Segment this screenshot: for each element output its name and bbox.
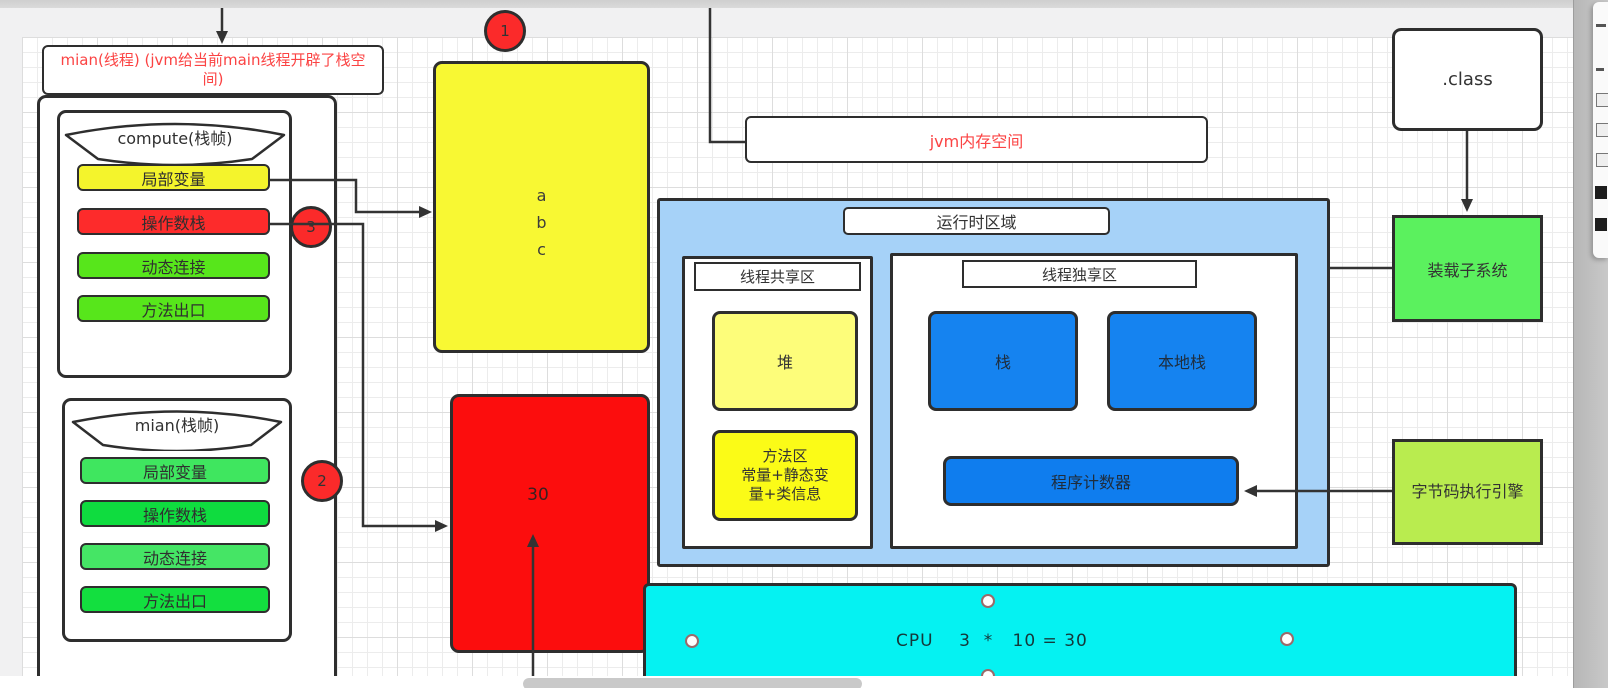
compute-frame-header[interactable]: compute(栈帧) xyxy=(60,115,290,165)
pc-register-label: 程序计数器 xyxy=(1051,469,1131,493)
thread-shared-label: 线程共享区 xyxy=(740,266,815,287)
class-file-label: .class xyxy=(1442,69,1492,90)
pc-register-box[interactable]: 程序计数器 xyxy=(943,456,1239,506)
connection-point-right[interactable] xyxy=(1280,632,1294,646)
result-value: 30 xyxy=(508,485,568,505)
compute-row-method-exit[interactable]: 方法出口 xyxy=(77,295,270,322)
var-b: b xyxy=(436,209,647,236)
main-thread-label: mian(线程) (jvm给当前main线程开辟了栈空间) xyxy=(44,51,382,89)
main-row-local-vars[interactable]: 局部变量 xyxy=(80,457,270,484)
var-a: a xyxy=(436,182,647,209)
top-window-bar xyxy=(0,0,1608,8)
app-window: mian(线程) (jvm给当前main线程开辟了栈空间) compute(栈帧… xyxy=(0,0,1608,688)
thread-shared-label-box[interactable]: 线程共享区 xyxy=(694,262,861,291)
right-side-panel-strip xyxy=(1573,0,1608,688)
shape-thumb-icon[interactable] xyxy=(1596,123,1608,137)
compute-row-dynamic-link[interactable]: 动态连接 xyxy=(77,252,270,279)
thread-exclusive-label: 线程独享区 xyxy=(1042,264,1117,285)
compute-row-operand-stack[interactable]: 操作数栈 xyxy=(77,208,270,235)
compute-frame-title: compute(栈帧) xyxy=(117,125,232,149)
stack-label: 栈 xyxy=(995,349,1011,373)
main-frame-header[interactable]: mian(栈帧) xyxy=(67,403,287,451)
shape-thumb-icon[interactable] xyxy=(1596,153,1608,167)
connection-point-top[interactable] xyxy=(981,594,995,608)
shape-thumb-icon[interactable] xyxy=(1595,218,1607,231)
jvm-memory-label: jvm内存空间 xyxy=(930,128,1024,152)
runtime-area-label-box[interactable]: 运行时区域 xyxy=(843,207,1110,235)
thread-exclusive-label-box[interactable]: 线程独享区 xyxy=(962,260,1197,288)
connection-point-left[interactable] xyxy=(685,634,699,648)
exec-engine-label: 字节码执行引擎 xyxy=(1403,481,1531,503)
shape-thumb-icon[interactable] xyxy=(1596,93,1608,107)
main-row-dynamic-link[interactable]: 动态连接 xyxy=(80,543,270,570)
runtime-area-label: 运行时区域 xyxy=(936,209,1016,233)
var-c: c xyxy=(436,236,647,263)
main-row-operand-stack[interactable]: 操作数栈 xyxy=(80,500,270,527)
operand-result-box[interactable]: 30 xyxy=(450,394,650,653)
method-area-line2: 常量+静态变 xyxy=(741,466,829,485)
step-badge-3[interactable]: 3 xyxy=(290,206,332,248)
native-stack-box[interactable]: 本地栈 xyxy=(1107,311,1257,411)
method-area-box[interactable]: 方法区 常量+静态变 量+类信息 xyxy=(712,430,858,521)
local-vars-value-box[interactable]: a b c xyxy=(433,61,650,353)
class-file-box[interactable]: .class xyxy=(1392,28,1543,131)
exec-engine-box[interactable]: 字节码执行引擎 xyxy=(1392,439,1543,545)
horizontal-scrollbar[interactable] xyxy=(523,678,862,688)
jvm-memory-label-box[interactable]: jvm内存空间 xyxy=(745,116,1208,163)
main-frame-title: mian(栈帧) xyxy=(135,412,219,436)
cpu-expression: CPU 3 * 10 = 30 xyxy=(896,631,1088,651)
native-stack-label: 本地栈 xyxy=(1158,349,1206,373)
class-loader-box[interactable]: 装载子系统 xyxy=(1392,215,1543,322)
step-badge-2[interactable]: 2 xyxy=(301,460,343,502)
heap-box[interactable]: 堆 xyxy=(712,311,858,411)
shape-thumb-icon[interactable] xyxy=(1596,68,1604,71)
shape-thumb-icon[interactable] xyxy=(1596,24,1606,27)
shape-thumb-icon[interactable] xyxy=(1595,186,1607,199)
right-mini-panel[interactable] xyxy=(1593,2,1608,258)
step-badge-1[interactable]: 1 xyxy=(484,10,526,52)
cpu-box[interactable]: CPU 3 * 10 = 30 xyxy=(643,583,1517,683)
class-loader-label: 装载子系统 xyxy=(1427,257,1507,281)
heap-label: 堆 xyxy=(777,349,793,373)
main-thread-label-box[interactable]: mian(线程) (jvm给当前main线程开辟了栈空间) xyxy=(42,45,384,95)
compute-row-local-vars[interactable]: 局部变量 xyxy=(77,164,270,191)
stack-box[interactable]: 栈 xyxy=(928,311,1078,411)
method-area-line1: 方法区 xyxy=(741,447,829,466)
main-row-method-exit[interactable]: 方法出口 xyxy=(80,586,270,613)
method-area-line3: 量+类信息 xyxy=(741,485,829,504)
